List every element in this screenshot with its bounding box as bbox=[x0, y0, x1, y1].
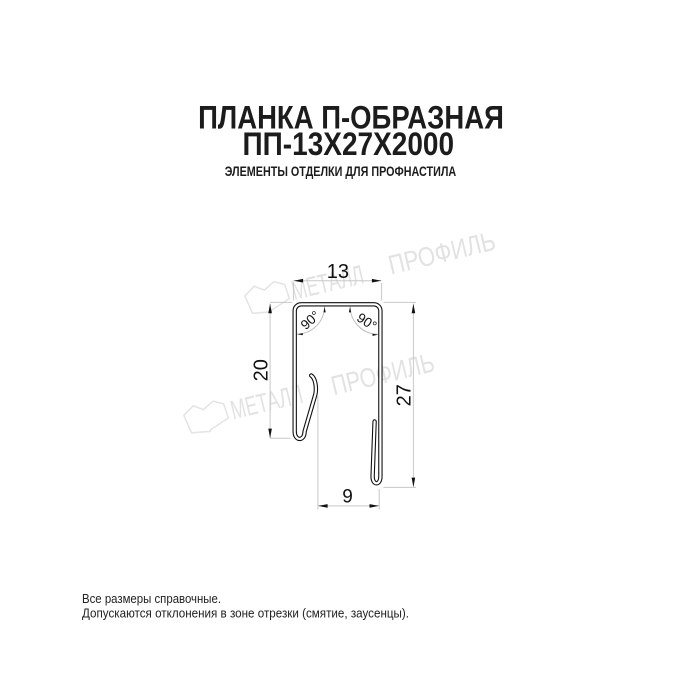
svg-text:ЭЛЕМЕНТЫ ОТДЕЛКИ ДЛЯ ПРОФНАСТИ: ЭЛЕМЕНТЫ ОТДЕЛКИ ДЛЯ ПРОФНАСТИЛА bbox=[225, 164, 457, 179]
svg-text:ПП-13Х27Х2000: ПП-13Х27Х2000 bbox=[243, 126, 455, 162]
svg-text:Допускаются отклонения в зоне: Допускаются отклонения в зоне отрезки (с… bbox=[82, 606, 409, 621]
svg-text:13: 13 bbox=[327, 261, 349, 283]
svg-text:20: 20 bbox=[250, 359, 272, 381]
svg-text:Все размеры справочные.: Все размеры справочные. bbox=[82, 591, 221, 606]
svg-text:27: 27 bbox=[394, 384, 416, 406]
svg-text:9: 9 bbox=[342, 486, 353, 507]
